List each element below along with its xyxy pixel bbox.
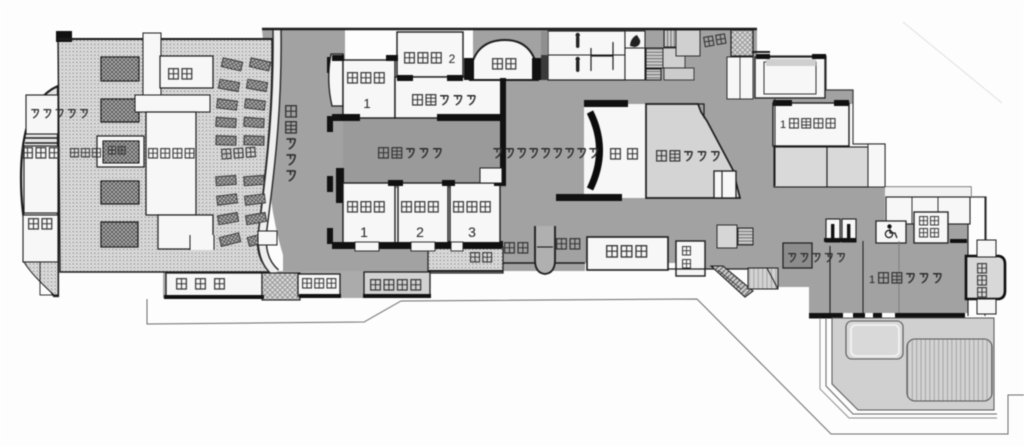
- svg-text:1: 1: [360, 224, 368, 240]
- svg-text:1: 1: [869, 274, 875, 286]
- svg-text:3: 3: [468, 224, 476, 240]
- svg-text:2: 2: [416, 224, 424, 240]
- svg-text:1: 1: [780, 119, 786, 131]
- svg-text:2: 2: [449, 52, 456, 66]
- svg-text:1: 1: [363, 96, 370, 111]
